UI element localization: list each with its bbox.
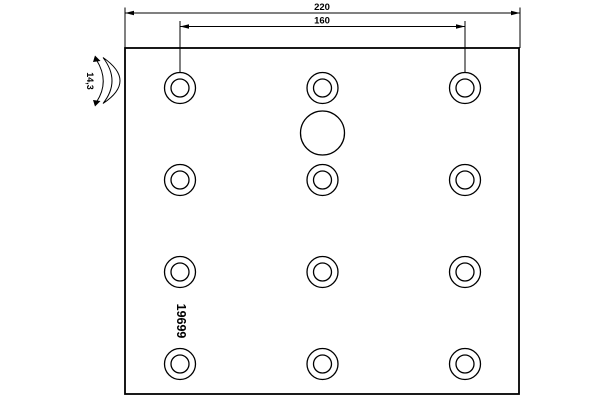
dim-arrow-left: [125, 11, 134, 16]
curvature-arrow-arc: [97, 60, 104, 102]
dimension-hole-span: 160: [180, 16, 465, 73]
dim-arrow-left: [180, 24, 189, 29]
part-number-label: 19699: [174, 304, 188, 339]
rivet-hole: [165, 257, 196, 288]
rivet-hole: [450, 73, 481, 104]
rivet-hole: [307, 349, 338, 380]
dim-label-overall-width: 220: [314, 2, 330, 13]
dim-arrow-right: [511, 11, 520, 16]
thickness-label: 14,3: [85, 72, 95, 90]
dim-arrow-right: [456, 24, 465, 29]
curvature-arrowhead-top: [93, 56, 101, 63]
curvature-symbol: 14,3: [85, 56, 120, 107]
lining-section-arc: [103, 58, 120, 104]
drawing-canvas: 220 160 14,3 19699: [0, 0, 600, 400]
rivet-hole: [307, 257, 338, 288]
brake-lining-technical-drawing: 220 160 14,3 19699: [0, 0, 600, 400]
rivet-hole: [165, 73, 196, 104]
rivet-hole: [450, 349, 481, 380]
rivet-holes: [165, 73, 481, 380]
curvature-arrowhead-bottom: [93, 100, 101, 107]
rivet-hole: [165, 165, 196, 196]
rivet-hole: [165, 349, 196, 380]
rivet-hole: [450, 165, 481, 196]
hatched-hole: [301, 111, 345, 155]
rivet-hole: [450, 257, 481, 288]
rivet-hole: [307, 73, 338, 104]
dim-label-hole-span: 160: [314, 16, 330, 27]
lining-plate-outline: [125, 48, 519, 394]
rivet-hole: [307, 165, 338, 196]
